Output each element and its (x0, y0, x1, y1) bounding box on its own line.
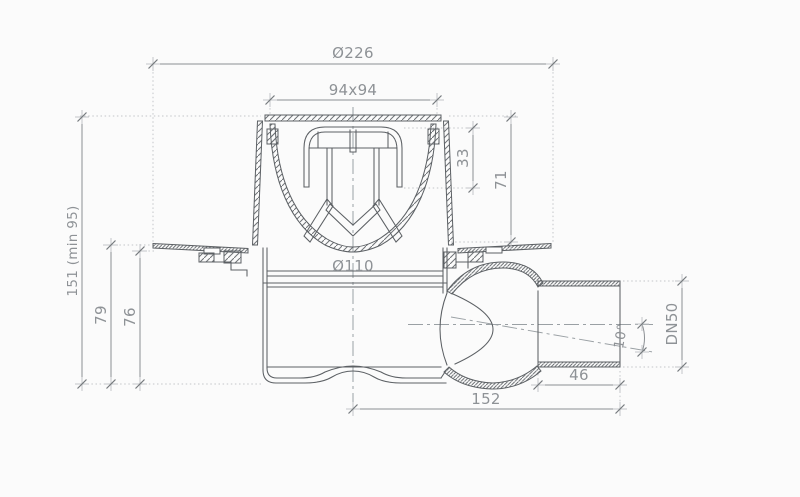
left-clamp-block (199, 253, 214, 262)
dim-label-body-height: 79 (92, 305, 110, 325)
outlet-ball-joint-pipe (444, 262, 620, 389)
right-outer-wall (444, 121, 454, 245)
dim-label-install-height: 151 (min 95) (65, 205, 81, 296)
pipe-top-wall (538, 281, 620, 286)
drawing-canvas: Ø226 94x94 33 71 151 (min 95) 79 76 Ø110… (0, 0, 800, 497)
sump-left-wall (263, 248, 267, 370)
socket-bottom-band (444, 366, 541, 389)
left-leg (327, 148, 332, 205)
left-clamp-block-2 (224, 251, 241, 263)
dim-label-outlet-reach: 152 (471, 390, 501, 408)
dim-label-insert-height: 33 (454, 148, 472, 168)
dim-label-sump-height: 76 (121, 307, 139, 327)
dim-label-flange-diameter: Ø226 (332, 44, 374, 62)
ball-socket-inner-arc (440, 293, 447, 365)
ball-arc (453, 294, 493, 364)
sump-joint-lines (263, 283, 447, 287)
socket-top-band (447, 262, 543, 294)
dim-label-outlet-size: DN50 (663, 302, 681, 345)
dim-label-grate-size: 94x94 (329, 81, 378, 99)
dim-label-body-diameter: Ø110 (332, 257, 374, 275)
dim-label-swivel-angle: 10° (611, 323, 631, 350)
right-flange-slot (486, 247, 502, 253)
dimension-labels: Ø226 94x94 33 71 151 (min 95) 79 76 Ø110… (65, 44, 681, 408)
dim-label-upper-depth: 71 (492, 170, 510, 190)
top-rim (265, 115, 441, 121)
right-leg (374, 148, 379, 205)
left-outer-wall (253, 121, 263, 245)
floor-drain-technical-drawing: Ø226 94x94 33 71 151 (min 95) 79 76 Ø110… (0, 0, 800, 497)
dim-label-stub-length: 46 (569, 366, 589, 384)
centerlines (353, 107, 653, 415)
right-clamp-block-2 (468, 252, 483, 262)
right-clamp-block (444, 252, 456, 268)
sump-bottom-left-corner (263, 368, 277, 383)
